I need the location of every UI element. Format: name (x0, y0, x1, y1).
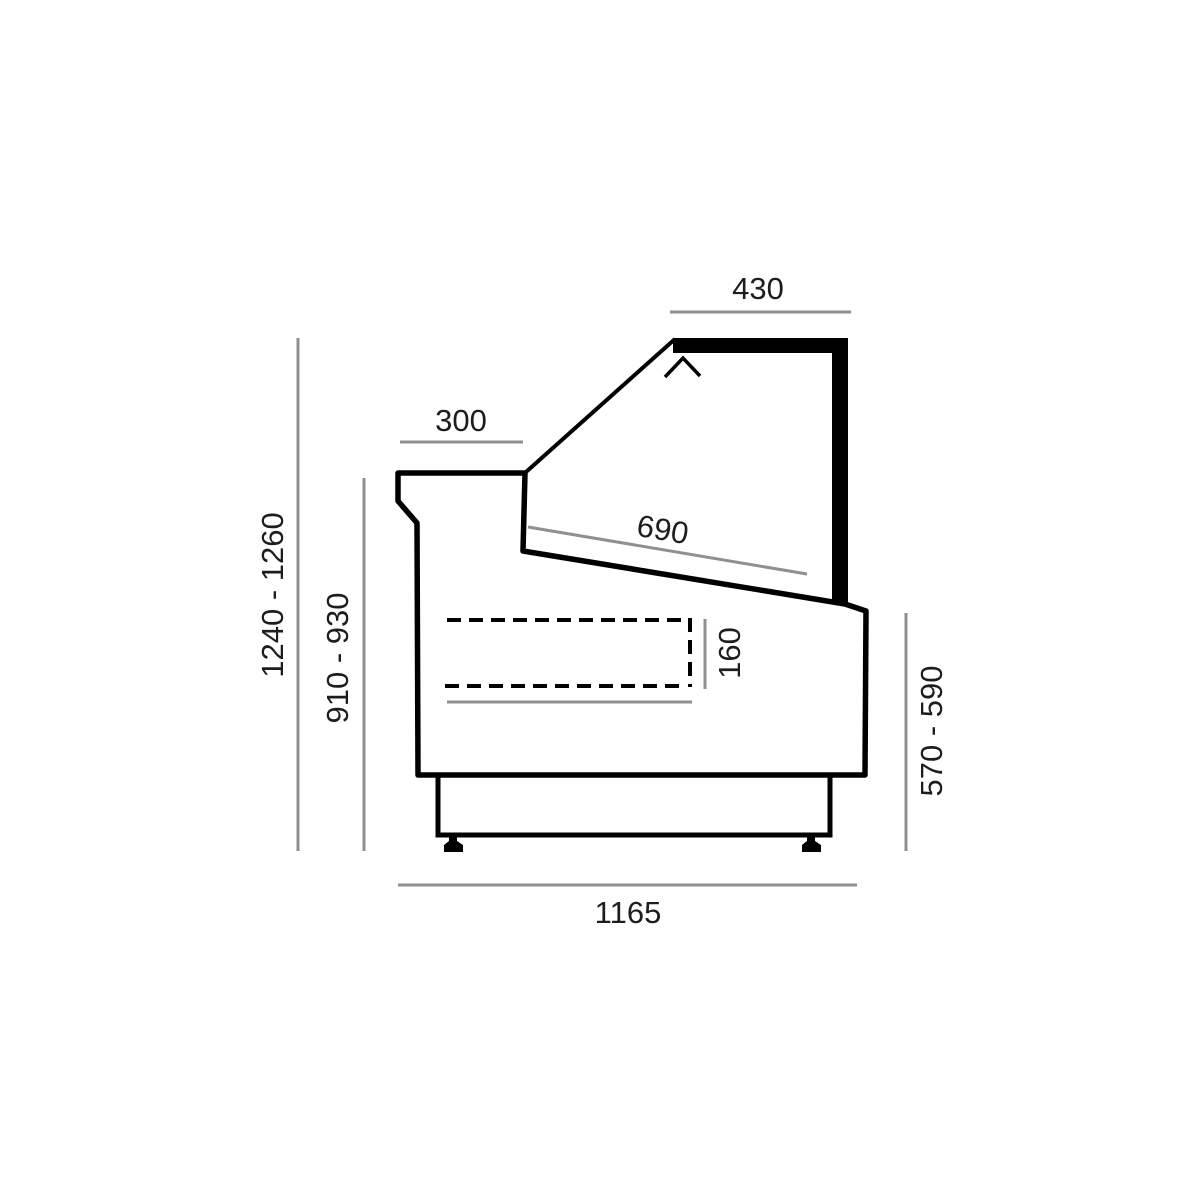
dim-label-overall-depth: 1165 (595, 895, 662, 930)
dim-label-canopy-depth: 430 (732, 271, 784, 306)
diagram-canvas: 430 300 690 160 1240 - 1260 910 - 930 57… (0, 0, 1200, 1200)
dim-label-well-height: 160 (712, 627, 747, 679)
canopy-bar (673, 338, 848, 353)
right-foot (802, 835, 821, 852)
counter-cross-section-drawing: 430 300 690 160 1240 - 1260 910 - 930 57… (0, 0, 1200, 1200)
dim-label-front-height: 910 - 930 (320, 593, 355, 724)
dim-label-overall-height: 1240 - 1260 (255, 512, 290, 677)
dim-label-rear-height: 570 - 590 (914, 666, 949, 797)
counter-body-outline (398, 473, 866, 775)
dim-label-worktop-depth: 300 (435, 403, 487, 438)
plinth-outline (438, 777, 830, 835)
rear-glass-bar (832, 353, 848, 603)
dim-label-deck-length: 690 (634, 508, 691, 551)
left-foot (444, 835, 463, 852)
airflow-chevron-icon (665, 358, 700, 377)
front-glass-line (526, 339, 675, 472)
